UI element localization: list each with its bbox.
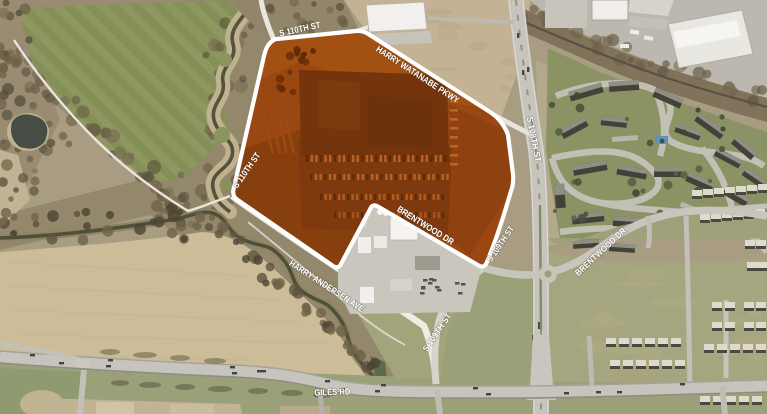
svg-text:GILES RD: GILES RD: [314, 386, 351, 397]
